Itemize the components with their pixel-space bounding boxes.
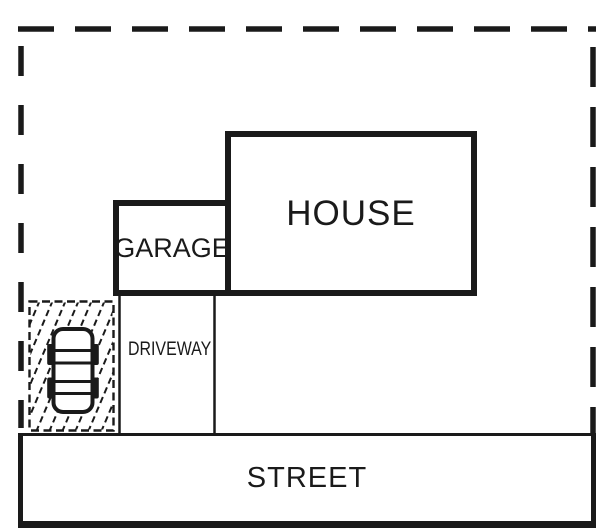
- street-band: STREET: [18, 433, 596, 528]
- house-outline: HOUSE: [225, 131, 477, 296]
- site-plan-diagram: HOUSE GARAGE DRIVEWAY STREET: [0, 0, 600, 532]
- garage-label: GARAGE: [114, 233, 230, 264]
- driveway-area: DRIVEWAY: [120, 339, 215, 361]
- driveway-edges: [120, 296, 215, 433]
- house-label: HOUSE: [286, 194, 415, 234]
- driveway-label: DRIVEWAY: [128, 339, 211, 361]
- car-body: [54, 329, 93, 412]
- garage-outline: GARAGE: [113, 200, 231, 296]
- street-label: STREET: [247, 462, 367, 495]
- car-top-view-icon: [47, 329, 99, 412]
